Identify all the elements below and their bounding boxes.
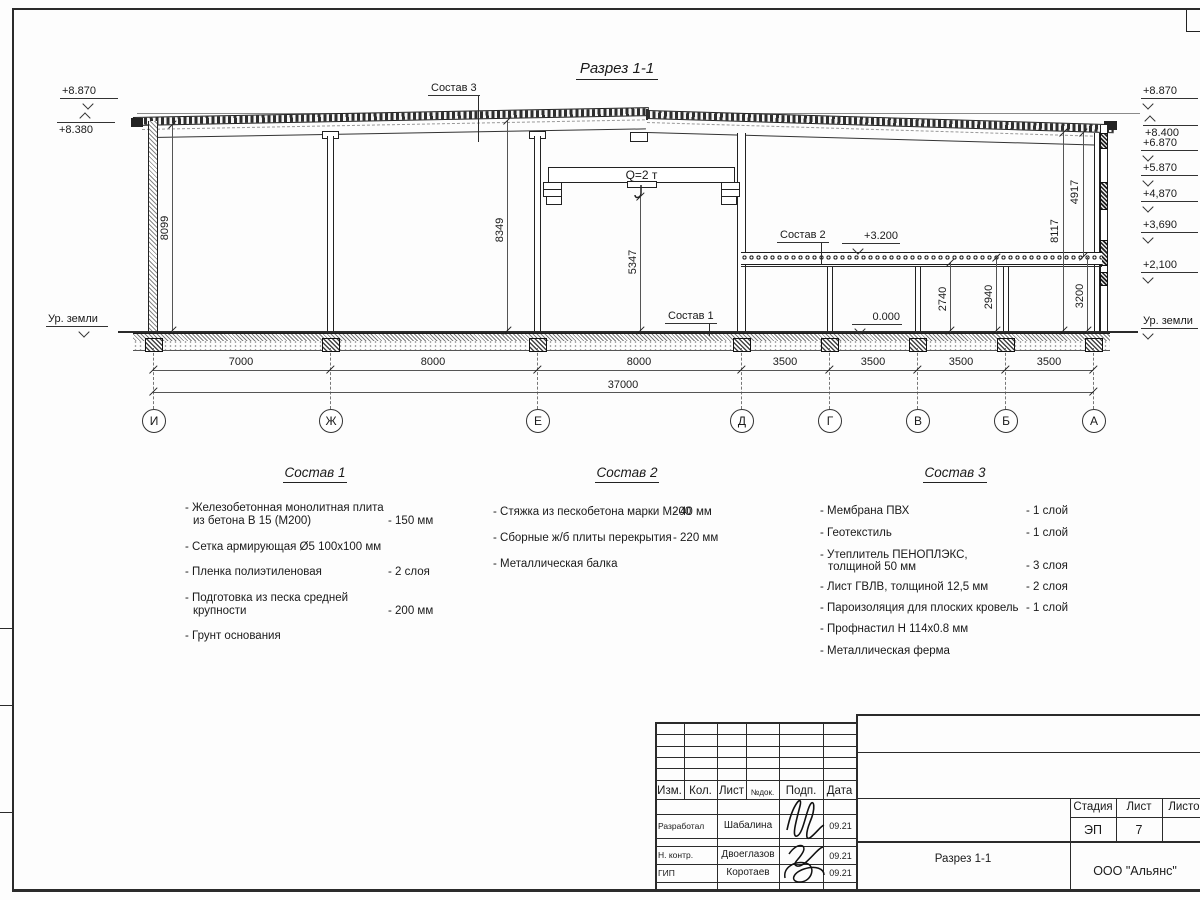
tb-col-izm: Изм. <box>655 785 684 797</box>
elevation-mark: +6.870 <box>1141 137 1198 151</box>
list-item: - Металлическая ферма <box>820 645 950 657</box>
mezzanine-beam-line <box>741 266 1102 267</box>
list-item-value: - 150 мм <box>388 515 433 527</box>
tb-stage-value: ЭП <box>1070 823 1116 837</box>
ridge-joint <box>646 109 648 120</box>
sostav3-title: Состав 3 <box>895 465 1015 480</box>
elevation-mark: +3,690 <box>1141 219 1198 233</box>
wall-axis-a <box>1100 125 1108 332</box>
axis-bubble: Ж <box>319 409 343 433</box>
dim-value: 2940 <box>983 275 995 319</box>
tb-col-kol: Кол. <box>684 785 717 797</box>
span-dim: 3500 <box>931 356 991 368</box>
tb-col-dok: №док. <box>746 788 779 797</box>
crane-capacity-label: Q=2 т <box>626 168 658 182</box>
crane-stop <box>721 196 737 205</box>
elevation-arrow-icon <box>82 98 93 109</box>
list-item-value: - 220 мм <box>673 532 718 544</box>
tb-date: 09.21 <box>825 851 856 861</box>
dim-line <box>1063 133 1064 331</box>
elevation-mark: +8.870 <box>1141 85 1198 99</box>
foundation-block <box>821 338 839 352</box>
axis-bubble: В <box>906 409 930 433</box>
sostav2-title: Состав 2 <box>567 465 687 480</box>
list-item: - Сетка армирующая Ø5 100х100 мм <box>185 541 381 553</box>
binding-mark <box>0 628 12 629</box>
dim-line <box>1083 133 1084 257</box>
span-dim: 3500 <box>843 356 903 368</box>
list-item-value: - 1 слой <box>1026 602 1068 614</box>
elevation-mark: Ур. земли <box>1141 315 1198 329</box>
binding-mark <box>0 705 12 706</box>
elevation-arrow-icon <box>1142 272 1153 283</box>
dim-line <box>172 125 173 332</box>
column-axis-g <box>827 267 833 332</box>
list-item: - Подготовка из песка средней <box>185 592 348 604</box>
tb-sheets-col: Листов <box>1162 801 1200 813</box>
list-item-value: - 3 слоя <box>1026 560 1068 572</box>
elevation-label: +8.380 <box>57 122 115 136</box>
list-item-value: - 40 мм <box>673 506 712 518</box>
tb-name: Шабалина <box>717 820 779 831</box>
elevation-arrow-icon <box>1142 232 1153 243</box>
signature-icon <box>781 792 825 842</box>
dim-line <box>1087 257 1088 332</box>
elevation-label: +4,870 <box>1141 188 1198 202</box>
elevation-arrow-icon <box>1142 98 1153 109</box>
elevation-mark: +8.380 <box>57 122 115 136</box>
axis-bubble: Е <box>526 409 550 433</box>
dim-value: 2740 <box>937 277 949 321</box>
tb-stage-col: Стадия <box>1070 801 1116 813</box>
frame-top <box>12 8 1200 10</box>
list-item: крупности <box>193 605 246 617</box>
elevation-mark: +5.870 <box>1141 162 1198 176</box>
list-item: - Стяжка из пескобетона марки М200 <box>493 506 691 518</box>
tb-sheet-col: Лист <box>1116 801 1162 813</box>
wall-panel <box>1100 133 1108 149</box>
span-dim: 7000 <box>211 356 271 368</box>
foundation-block <box>529 338 547 352</box>
dim-value: 8349 <box>494 208 506 252</box>
tb-date: 09.21 <box>825 868 856 878</box>
level-label: +3.200 <box>842 230 900 244</box>
foundation-block <box>997 338 1015 352</box>
elevation-label: +3,690 <box>1141 219 1198 233</box>
list-item: - Мембрана ПВХ <box>820 505 909 517</box>
elevation-mark: +2,100 <box>1141 259 1198 273</box>
foundation-block <box>909 338 927 352</box>
page-title: Разрез 1-1 <box>557 60 677 77</box>
mezzanine-slab <box>741 252 1102 265</box>
tb-date: 09.21 <box>825 821 856 831</box>
elevation-label: +2,100 <box>1141 259 1198 273</box>
dim-value: 5347 <box>627 240 639 284</box>
tb-sheet-value: 7 <box>1116 823 1162 837</box>
column-axis-e <box>534 136 541 332</box>
dim-value: 8099 <box>159 206 171 250</box>
ridge-bracket <box>630 132 648 142</box>
tb-col-data: Дата <box>823 785 856 797</box>
list-item-value: - 200 мм <box>388 605 433 617</box>
span-dim: 3500 <box>1019 356 1079 368</box>
elevation-mark: +4,870 <box>1141 188 1198 202</box>
wall-axis-i <box>148 121 158 332</box>
list-item: - Металлическая балка <box>493 558 617 570</box>
crane-stop <box>546 196 562 205</box>
frame-bottom <box>12 889 1200 892</box>
column-axis-v <box>915 267 921 332</box>
tb-company: ООО "Альянс" <box>1070 864 1200 878</box>
roof-edge-left <box>131 118 143 127</box>
elevation-arrow-icon <box>1142 201 1153 212</box>
column-axis-b <box>1003 267 1009 332</box>
axis-bubble: Д <box>730 409 754 433</box>
tb-role: Разработал <box>658 821 718 831</box>
dim-chain-line <box>153 370 1093 371</box>
wall-panel <box>1100 272 1108 286</box>
drawing-sheet: Разрез 1-1 Q=2 т <box>0 0 1200 900</box>
elevation-label: Ур. земли <box>1141 315 1198 329</box>
axis-bubble: Б <box>994 409 1018 433</box>
callout-leader <box>709 324 710 336</box>
elevation-arrow-icon <box>1142 150 1153 161</box>
dim-total-line <box>153 392 1093 393</box>
tb-name: Двоеглазов <box>717 849 779 860</box>
list-item-value: - 1 слой <box>1026 527 1068 539</box>
column-axis-d <box>737 133 746 332</box>
dim-value: 3200 <box>1074 274 1086 318</box>
elevation-label: Ур. земли <box>46 313 108 327</box>
sostav1-title: Состав 1 <box>255 465 375 480</box>
callout-sostav3: Состав 3 <box>428 82 480 96</box>
total-dim: 37000 <box>583 379 663 391</box>
level-mark-0000: 0.000 <box>852 311 902 325</box>
dim-line <box>950 263 951 332</box>
elevation-label: +5.870 <box>1141 162 1198 176</box>
list-item: из бетона В 15 (М200) <box>193 515 311 527</box>
list-item: - Утеплитель ПЕНОПЛЭКС, <box>820 549 968 561</box>
page-title-text: Разрез 1-1 <box>576 60 658 80</box>
sand-bed <box>133 340 1110 351</box>
roof-deck-left <box>133 107 649 126</box>
elevation-arrow-icon <box>1142 175 1153 186</box>
dim-value: 8117 <box>1049 209 1061 253</box>
truss-chord-left <box>152 128 646 138</box>
elevation-label: +8.870 <box>60 85 118 99</box>
tb-name: Коротаев <box>717 867 779 878</box>
foundation-block <box>322 338 340 352</box>
level-mark-3200: +3.200 <box>842 230 900 244</box>
span-dim: 3500 <box>755 356 815 368</box>
signature-icon <box>781 840 827 886</box>
callout-leader <box>821 243 822 265</box>
corner-box <box>1186 10 1200 32</box>
list-item: - Профнастил Н 114х0.8 мм <box>820 623 968 635</box>
axis-bubble: А <box>1082 409 1106 433</box>
axis-bubble: И <box>142 409 166 433</box>
dim-line <box>507 121 508 331</box>
callout-sostav2: Состав 2 <box>777 229 829 243</box>
elevation-mark: Ур. земли <box>46 313 108 327</box>
tb-role: ГИП <box>658 868 718 878</box>
elevation-arrow-icon <box>1142 328 1153 339</box>
span-dim: 8000 <box>403 356 463 368</box>
tb-role: Н. контр. <box>658 850 718 860</box>
list-item: - Грунт основания <box>185 630 281 642</box>
list-item-value: - 2 слоя <box>388 566 430 578</box>
list-item: - Пароизоляция для плоских кровель <box>820 602 1019 614</box>
tb-col-list: Лист <box>717 785 746 797</box>
foundation-block <box>145 338 163 352</box>
foundation-block <box>733 338 751 352</box>
dim-line <box>996 258 997 332</box>
tb-doc-title: Разрез 1-1 <box>856 853 1070 865</box>
list-item-value: - 2 слоя <box>1026 581 1068 593</box>
callout-leader <box>478 96 479 142</box>
list-item: - Сборные ж/б плиты перекрытия <box>493 532 672 544</box>
wall-panel <box>1100 182 1108 210</box>
elevation-arrow-icon <box>78 326 89 337</box>
dim-line <box>640 197 641 331</box>
list-item-value: - 1 слой <box>1026 505 1068 517</box>
axis-bubble: Г <box>818 409 842 433</box>
frame-left <box>12 8 14 892</box>
callout-sostav1: Состав 1 <box>665 310 717 324</box>
foundation-block <box>1085 338 1103 352</box>
elevation-label: +8.870 <box>1141 85 1198 99</box>
column-axis-zh <box>327 136 334 332</box>
list-item: толщиной 50 мм <box>828 561 916 573</box>
list-item: - Железобетонная монолитная плита <box>185 502 384 514</box>
list-item: - Геотекстиль <box>820 527 892 539</box>
list-item: - Лист ГВЛВ, толщиной 12,5 мм <box>820 581 988 593</box>
span-dim: 8000 <box>609 356 669 368</box>
elevation-label: +6.870 <box>1141 137 1198 151</box>
dim-value: 4917 <box>1069 170 1081 214</box>
binding-mark <box>0 812 12 813</box>
elevation-mark: +8.870 <box>60 85 118 99</box>
list-item: - Пленка полиэтиленовая <box>185 566 322 578</box>
